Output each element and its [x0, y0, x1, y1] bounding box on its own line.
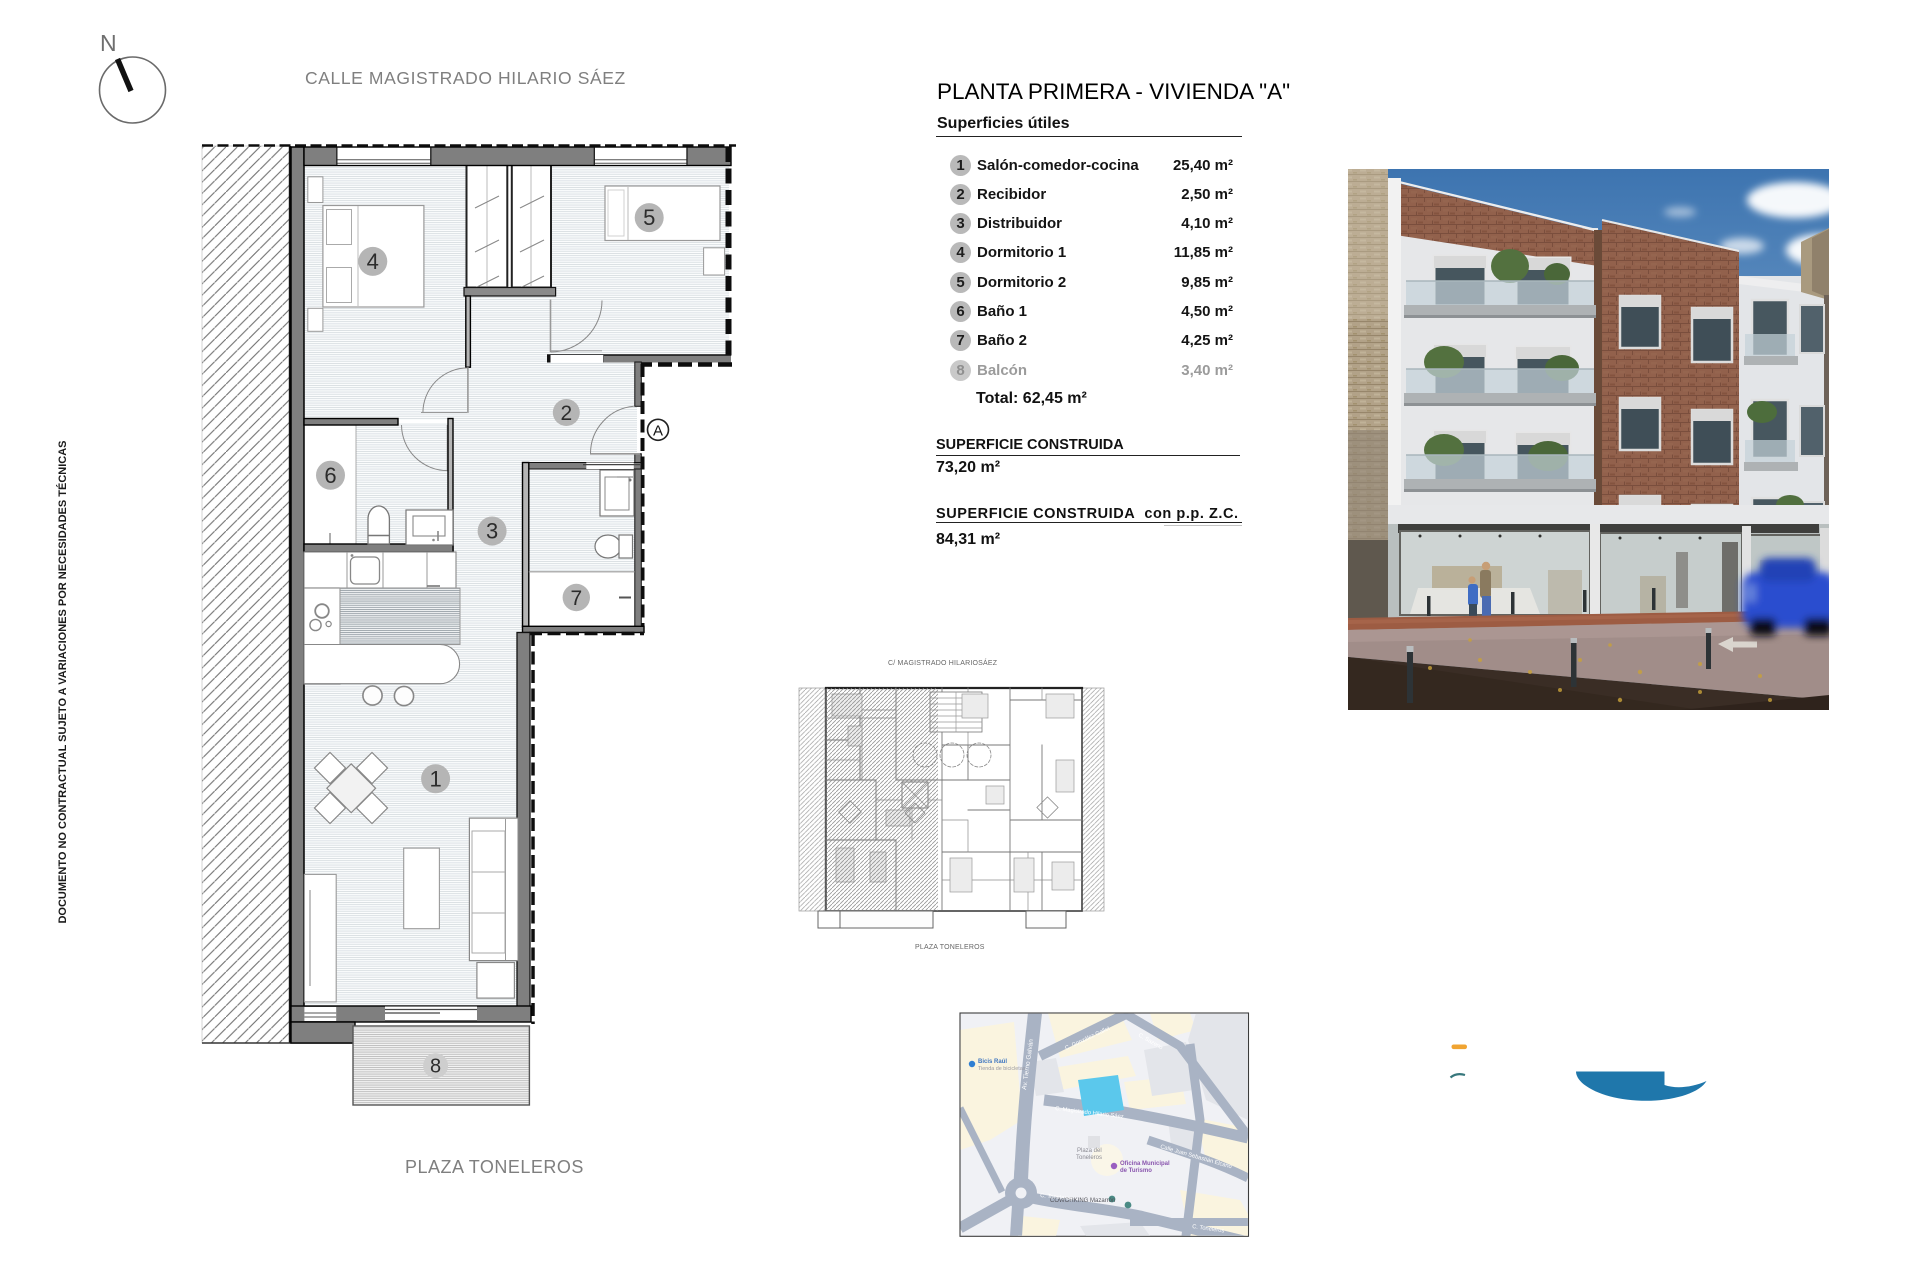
svg-text:5: 5 [643, 205, 655, 230]
svg-text:Toneleros: Toneleros [1076, 1155, 1102, 1161]
svg-text:Plaza del: Plaza del [1077, 1148, 1102, 1154]
svg-text:8: 8 [430, 1056, 441, 1078]
svg-text:Oficina Municipal: Oficina Municipal [1120, 1161, 1170, 1167]
svg-text:de Turismo: de Turismo [1120, 1168, 1152, 1174]
svg-text:6: 6 [324, 463, 336, 488]
svg-text:Tienda de bicicletas: Tienda de bicicletas [978, 1066, 1026, 1072]
svg-text:7: 7 [570, 587, 582, 610]
svg-text:A: A [653, 422, 663, 439]
svg-text:3: 3 [486, 519, 498, 544]
svg-text:4: 4 [367, 249, 379, 274]
svg-text:2: 2 [560, 402, 572, 425]
svg-text:1: 1 [429, 766, 441, 791]
svg-text:N: N [100, 30, 117, 56]
svg-text:Bicis Raúl: Bicis Raúl [978, 1059, 1007, 1065]
